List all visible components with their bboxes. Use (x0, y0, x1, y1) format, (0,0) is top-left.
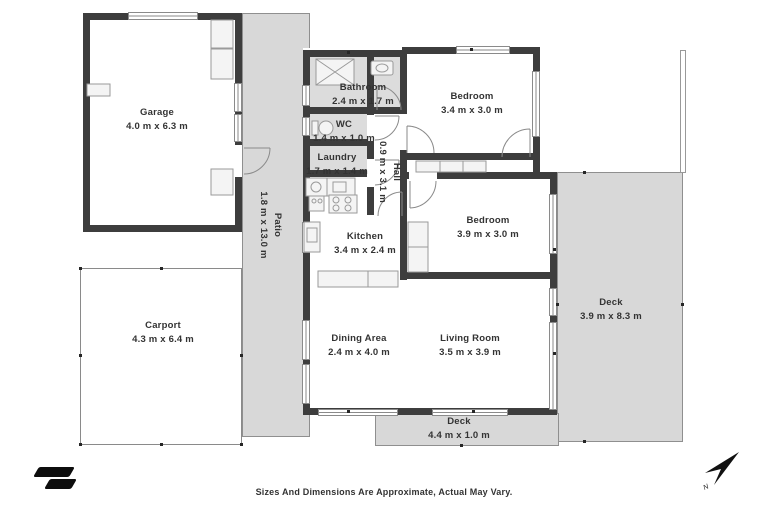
window (549, 194, 557, 254)
room-name: Bedroom (441, 90, 503, 104)
window (549, 288, 557, 316)
room-label-wc: WC 1.4 m x 1.0 m (313, 118, 375, 146)
post-marker (347, 410, 350, 413)
wall (400, 272, 557, 279)
room-name: Bathroom (332, 81, 394, 95)
room-label-dining: Dining Area 2.4 m x 4.0 m (328, 332, 390, 360)
room-name: Garage (126, 106, 188, 120)
room-dimensions: 0.9 m x 3.1 m (375, 141, 389, 203)
room-dimensions: 3.5 m x 3.9 m (439, 346, 501, 360)
post-marker (681, 303, 684, 306)
post-marker (553, 352, 556, 355)
room-name: Deck (580, 296, 642, 310)
room-dimensions: 2.4 m x 4.0 m (328, 346, 390, 360)
post-marker (460, 444, 463, 447)
room-label-living: Living Room 3.5 m x 3.9 m (439, 332, 501, 360)
post-marker (79, 443, 82, 446)
room-dimensions: 3.4 m x 3.0 m (441, 104, 503, 118)
room-dimensions: 1.4 m x 1.0 m (313, 132, 375, 146)
room-label-hall: Hall 0.9 m x 3.1 m (375, 141, 403, 203)
wall (305, 50, 405, 57)
wall (83, 13, 90, 232)
wall (83, 225, 242, 232)
room-name: Hall (389, 141, 403, 203)
post-marker (79, 354, 82, 357)
floor-plan: N Garage 4.0 m x 6.3 m Carport 4.3 m x 6… (0, 0, 768, 512)
room-name: Bedroom (457, 214, 519, 228)
room-dimensions: 1.8 m x 13.0 m (256, 191, 270, 258)
logo-bar-icon (33, 467, 75, 477)
post-marker (556, 303, 559, 306)
room-name: Carport (132, 319, 194, 333)
carport-area (80, 268, 242, 445)
room-label-bedroom-north: Bedroom 3.4 m x 3.0 m (441, 90, 503, 118)
room-dimensions: 2.4 m x 1.7 m (332, 95, 394, 109)
window (302, 85, 310, 106)
wall (400, 153, 540, 160)
room-dimensions: 4.3 m x 6.4 m (132, 333, 194, 347)
room-dimensions: 4.0 m x 6.3 m (126, 120, 188, 134)
room-label-bedroom-east: Bedroom 3.9 m x 3.0 m (457, 214, 519, 242)
room-name: Deck (428, 415, 490, 429)
room-label-kitchen: Kitchen 3.4 m x 2.4 m (334, 230, 396, 258)
north-arrow-icon (705, 452, 739, 485)
room-label-laundry: Laundry 1.7 m x 1.4 m (306, 151, 368, 179)
post-marker (160, 267, 163, 270)
post-marker (240, 443, 243, 446)
room-label-deck-east: Deck 3.9 m x 8.3 m (580, 296, 642, 324)
window (234, 114, 242, 142)
room-label-garage: Garage 4.0 m x 6.3 m (126, 106, 188, 134)
room-label-carport: Carport 4.3 m x 6.4 m (132, 319, 194, 347)
door-opening (235, 145, 242, 177)
post-marker (160, 443, 163, 446)
room-dimensions: 3.9 m x 8.3 m (580, 310, 642, 324)
post-marker (470, 48, 473, 51)
window (549, 322, 557, 410)
room-name: Kitchen (334, 230, 396, 244)
window (302, 117, 310, 136)
post-marker (583, 171, 586, 174)
window (302, 320, 310, 360)
post-marker (240, 354, 243, 357)
room-name: Laundry (306, 151, 368, 165)
door-opening (409, 172, 437, 179)
room-dimensions: 1.7 m x 1.4 m (306, 165, 368, 179)
post-marker (347, 51, 350, 54)
post-marker (472, 410, 475, 413)
room-dimensions: 3.4 m x 2.4 m (334, 244, 396, 258)
room-name: WC (313, 118, 375, 132)
sliding-door (318, 409, 398, 416)
deck-fence (680, 50, 686, 173)
north-indicator: N (702, 452, 739, 492)
window (532, 71, 540, 137)
window (302, 222, 310, 253)
room-dimensions: 3.9 m x 3.0 m (457, 228, 519, 242)
room-name: Patio (270, 191, 284, 258)
room-dimensions: 4.4 m x 1.0 m (428, 429, 490, 443)
room-label-patio: Patio 1.8 m x 13.0 m (256, 191, 284, 258)
window (456, 46, 510, 54)
disclaimer-text: Sizes And Dimensions Are Approximate, Ac… (0, 487, 768, 497)
post-marker (583, 440, 586, 443)
window (234, 83, 242, 112)
room-label-bathroom: Bathroom 2.4 m x 1.7 m (332, 81, 394, 109)
window (302, 364, 310, 404)
room-name: Living Room (439, 332, 501, 346)
garage-door (128, 12, 198, 20)
door-opening (367, 159, 374, 187)
room-label-deck-south: Deck 4.4 m x 1.0 m (428, 415, 490, 443)
post-marker (553, 248, 556, 251)
post-marker (79, 267, 82, 270)
room-name: Dining Area (328, 332, 390, 346)
